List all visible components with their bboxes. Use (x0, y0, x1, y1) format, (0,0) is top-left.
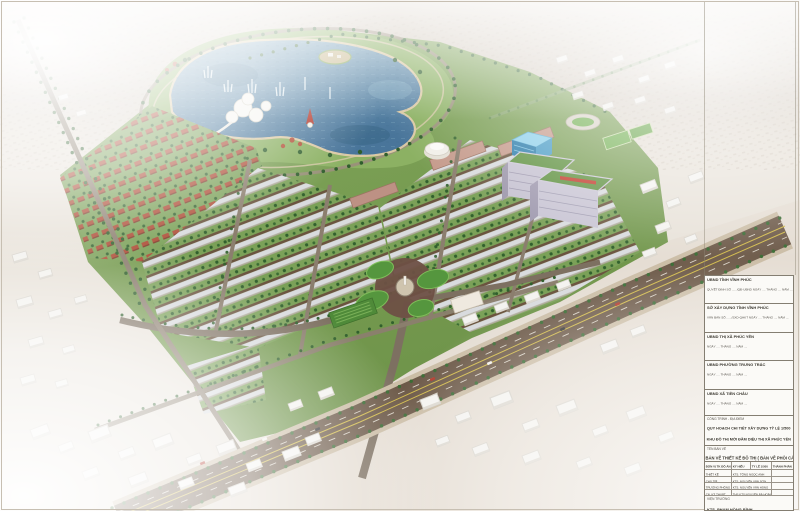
title-block-frame-upper (704, 2, 796, 275)
name-cell: KTS. NGUYỄN VĂN HÙNG (732, 486, 771, 489)
masterplan-sheet: UBND TỈNH VĨNH PHÚC QUYẾT ĐỊNH SỐ ......… (0, 0, 800, 511)
signature-table: ĐƠN VỊ TK ĐỒ ÁN KÝ HIỆU TỶ LỆ 1/500 THÀN… (704, 462, 794, 511)
header-cell: TỶ LỆ 1/500 (751, 465, 772, 468)
director-row: VIỆN TRƯỞNG KTS. PHẠM HỒNG BÌNH (705, 495, 793, 511)
approval-box-construction-dept: SỞ XÂY DỰNG TỈNH VĨNH PHÚC VĂN BẢN SỐ ..… (704, 304, 794, 333)
fog-top-band (0, 0, 800, 120)
header-cell: THÀNH PHẦN (772, 465, 793, 468)
org-note: NGÀY .... THÁNG .... NĂM .... (707, 402, 794, 405)
project-title-line1: QUY HOẠCH CHI TIẾT XÂY DỰNG TỶ LỆ 1/500 (705, 426, 793, 431)
table-row: THIẾT KẾ KTS. TỐNG NGỌC ANH (705, 469, 793, 476)
approval-box-province: UBND TỈNH VĨNH PHÚC QUYẾT ĐỊNH SỐ ......… (704, 275, 794, 304)
role-cell: CN. KỸ THUẬT (705, 492, 732, 495)
table-header-row: ĐƠN VỊ TK ĐỒ ÁN KÝ HIỆU TỶ LỆ 1/500 THÀN… (705, 462, 793, 469)
role-cell: CHỦ TRÌ (705, 479, 732, 482)
name-cell: KTS. TỐNG NGỌC ANH (732, 473, 771, 476)
approval-box-town: UBND THỊ XÃ PHÚC YÊN NGÀY .... THÁNG ...… (704, 333, 794, 361)
approval-box-ward: UBND PHƯỜNG TRƯNG TRẮC NGÀY .... THÁNG .… (704, 361, 794, 390)
project-label: CÔNG TRÌNH - ĐỊA ĐIỂM (707, 417, 794, 421)
org-note: NGÀY .... THÁNG .... NĂM .... (707, 345, 794, 348)
approval-box-commune: UBND XÃ TIỀN CHÂU NGÀY .... THÁNG .... N… (704, 390, 794, 416)
org-note: VĂN BẢN SỐ ....../SXD-QHKT NGÀY .... THÁ… (707, 316, 794, 319)
org-note: QUYẾT ĐỊNH SỐ ....../QĐ-UBND NGÀY .... T… (707, 288, 794, 291)
role-cell: TRƯỞNG PHÒNG (705, 486, 732, 489)
role-cell: THIẾT KẾ (705, 473, 732, 476)
header-cell: ĐƠN VỊ TK ĐỒ ÁN (705, 465, 732, 468)
director-label: VIỆN TRƯỞNG (707, 497, 794, 501)
table-row: CN. KỸ THUẬT THS.KTS NGUYỄN BÁ HOÀNG (705, 489, 793, 496)
title-block: UBND TỈNH VĨNH PHÚC QUYẾT ĐỊNH SỐ ......… (704, 0, 796, 511)
project-title-section: CÔNG TRÌNH - ĐỊA ĐIỂM QUY HOẠCH CHI TIẾT… (704, 416, 794, 446)
table-row: TRƯỞNG PHÒNG KTS. NGUYỄN VĂN HÙNG (705, 482, 793, 489)
drawing-label: TÊN BẢN VẼ (707, 447, 794, 451)
org-name: UBND THỊ XÃ PHÚC YÊN (707, 335, 794, 339)
header-cell: KÝ HIỆU (732, 465, 750, 468)
name-cell: KTS. NGUYỄN VĂN SƠN (732, 479, 771, 482)
masterplan-render (0, 0, 800, 511)
name-cell: THS.KTS NGUYỄN BÁ HOÀNG (732, 492, 771, 495)
drawing-title-section: TÊN BẢN VẼ BẢN VẼ THIẾT KẾ ĐÔ THỊ ( BẢN … (704, 446, 794, 462)
table-row: CHỦ TRÌ KTS. NGUYỄN VĂN SƠN (705, 476, 793, 483)
org-name: UBND XÃ TIỀN CHÂU (707, 392, 794, 396)
org-name: UBND TỈNH VĨNH PHÚC (707, 278, 794, 282)
org-name: SỞ XÂY DỰNG TỈNH VĨNH PHÚC (707, 306, 794, 310)
org-note: NGÀY .... THÁNG .... NĂM .... (707, 373, 794, 376)
project-title-line2: KHU ĐÔ THỊ MỚI ĐẦM DIỆU THỊ XÃ PHÚC YÊN (705, 437, 793, 442)
drawing-title: BẢN VẼ THIẾT KẾ ĐÔ THỊ ( BẢN VẼ PHỐI CẢN… (705, 456, 793, 461)
org-name: UBND PHƯỜNG TRƯNG TRẮC (707, 363, 794, 367)
